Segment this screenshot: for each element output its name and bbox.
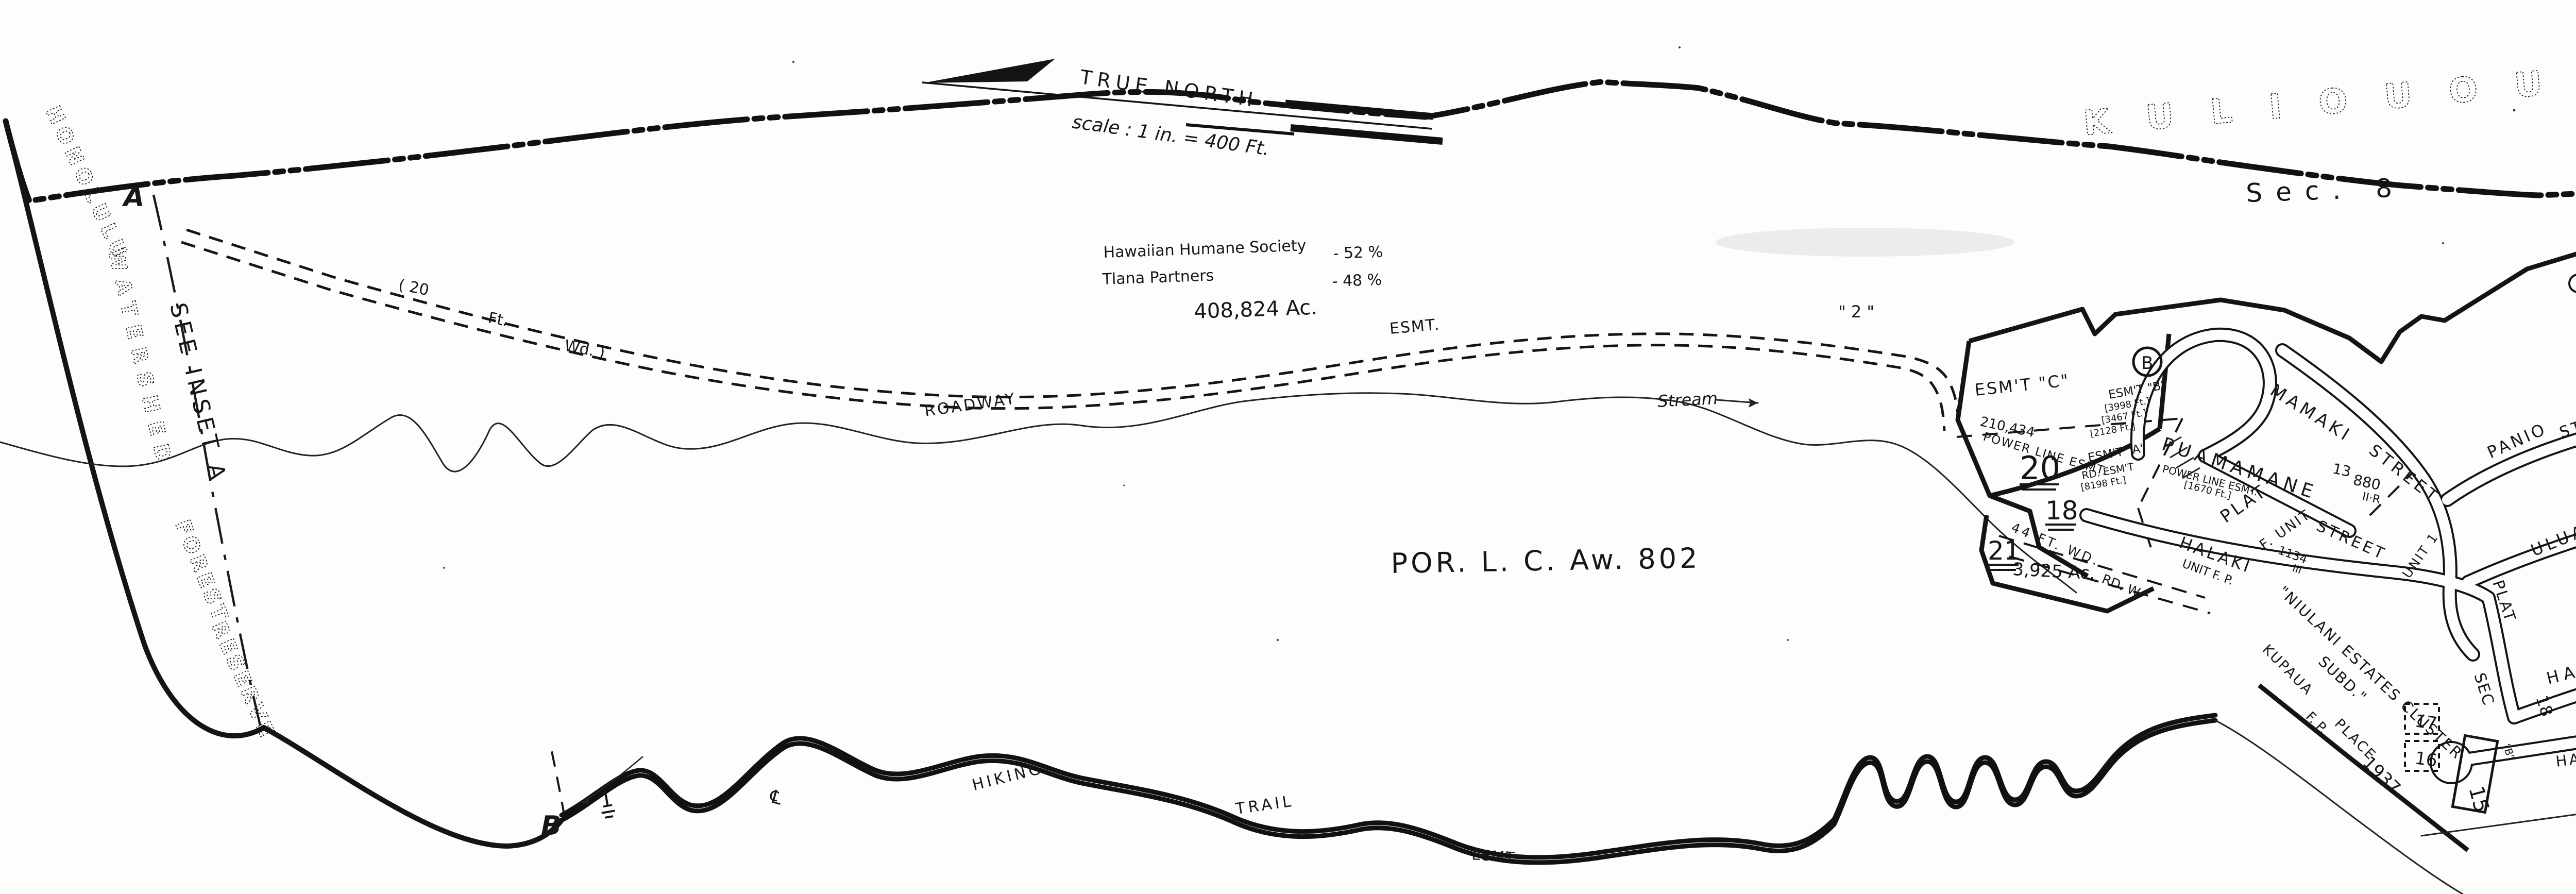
roadway-width-2-text: Ft. — [486, 309, 510, 330]
owner-1: Hawaiian Humane Society — [1103, 237, 1307, 262]
stream-line — [0, 393, 2076, 593]
point-a-label-text: A — [122, 182, 144, 213]
reserve-forest-text: FOREST — [171, 517, 233, 627]
fp-label-text: F. P. — [2302, 709, 2331, 737]
esmt-2-label: " 2 " — [1838, 302, 1874, 322]
trail-esmt-label: ESMT. — [1471, 846, 1520, 866]
rd-w-label: RD. W. — [2100, 571, 2145, 601]
trail-cl-symbol: ℄ — [767, 786, 785, 809]
fp-label: F. P. — [2302, 709, 2331, 737]
scale-label-text: scale : 1 in. = 400 Ft. — [1071, 111, 1271, 160]
point-a-label: A — [122, 182, 144, 213]
subdivision-streets — [2087, 335, 2576, 777]
stream-label-text: Stream — [1657, 389, 1718, 411]
scan-smudge — [1716, 228, 2014, 257]
total-area-label: 408,824 Ac. — [1194, 296, 1318, 324]
scale-bar-2 — [1291, 128, 1443, 141]
point-b-label-text: B — [541, 811, 562, 841]
lot-1-label: 1 — [597, 786, 616, 818]
sec-vert-label-text: SEC — [2470, 671, 2497, 709]
rd-w-label-text: RD. W. — [2100, 571, 2145, 601]
lot-20-label-text: 20 — [2020, 449, 2060, 487]
reserve-watershed: WATERSHED — [103, 246, 177, 473]
trail-hiking-label: HIKING — [970, 760, 1045, 795]
esmt-c-label-text: ESM'T "C" — [1974, 370, 2071, 400]
esmt-2-label-text: " 2 " — [1838, 302, 1874, 322]
trail-cl-symbol-text: ℄ — [767, 786, 785, 809]
district-name-text: KULIOUOU — [2082, 60, 2576, 143]
reserve-forest: FOREST — [171, 517, 233, 627]
area-3925-label-text: 3,925 Ac. — [2012, 559, 2096, 584]
panio-street-label-text: STREET — [2557, 402, 2576, 442]
num-880-text: 880 — [2352, 471, 2382, 494]
hiking-trail-edge — [562, 715, 2215, 857]
lot-16-label-text: 16 — [2414, 748, 2438, 771]
owner-2-text: Tlana Partners — [1101, 266, 1214, 289]
point-b-leader — [550, 744, 565, 817]
scale-label: scale : 1 in. = 400 Ft. — [1071, 111, 1271, 160]
owner-1-text: Hawaiian Humane Society — [1103, 237, 1307, 262]
cluster-top-boundary — [1969, 230, 2576, 362]
owner-1-share: - 52 % — [1333, 243, 1383, 263]
total-area-label-text: 408,824 Ac. — [1194, 296, 1318, 324]
niulani-label-text: "NIULANI ESTATES CLUSTER — [2275, 582, 2466, 763]
reserve-honolulu-text: HONOLULU — [41, 103, 133, 266]
trail-trail-label-text: TRAIL — [1234, 792, 1295, 818]
trail-trail-label: TRAIL — [1234, 792, 1295, 818]
district-sec-text: Sec. 8 — [2245, 173, 2405, 208]
district-sec: Sec. 8 — [2245, 173, 2405, 208]
niulani-label: "NIULANI ESTATES CLUSTER — [2275, 582, 2466, 763]
halemaumau-st-label: HALEMAUMAU — [2545, 630, 2576, 688]
point-b-label: B — [541, 811, 562, 841]
lot-18-label: 18 — [2045, 496, 2078, 530]
num-880: 880 — [2352, 471, 2382, 494]
esmt-b-circle-letter: B — [2141, 353, 2153, 374]
reserve-watershed-text: WATERSHED — [103, 246, 177, 473]
street-fills — [2087, 335, 2576, 777]
sec-vert-label: SEC — [2470, 671, 2497, 709]
reserve-honolulu: HONOLULU — [41, 103, 133, 266]
district-name: KULIOUOU — [2082, 60, 2576, 143]
lot-1-label-underline — [605, 816, 613, 818]
lot-18-label-text: 18 — [2045, 496, 2078, 526]
trail-hiking-label-text: HIKING — [970, 760, 1045, 795]
num-13-text: 13 — [2331, 460, 2353, 481]
roadway-esmt-label-text: ESMT. — [1389, 316, 1441, 338]
reserve-reserve: RESERVE — [207, 618, 280, 743]
area-3925-label: 3,925 Ac. — [2012, 559, 2096, 584]
parcel-title-label: POR. L. C. Aw. 802 — [1391, 542, 1701, 580]
esmt-c-label: ESM'T "C" — [1974, 370, 2071, 400]
stream-label: Stream — [1657, 389, 1718, 411]
lot-16-label: 16 — [2414, 748, 2438, 771]
roadway-esmt-label: ESMT. — [1389, 316, 1441, 338]
halemaumau-st-label-text: HALEMAUMAU — [2545, 630, 2576, 688]
owner-2-share-text: - 48 % — [1332, 271, 1382, 291]
roadway-width-3-text: Wd. ) — [563, 336, 606, 362]
owner-1-share-text: - 52 % — [1333, 243, 1383, 263]
lot-17-label: 17 — [2414, 711, 2438, 734]
trail-esmt-label-text: ESMT. — [1471, 846, 1520, 866]
west-south-boundary — [6, 121, 562, 846]
lot-20-label: 20 — [2020, 449, 2060, 490]
num-13: 13 — [2331, 460, 2353, 481]
esmt-b-circle-letter-text: B — [2141, 353, 2153, 374]
lot-17-label-text: 17 — [2414, 711, 2438, 734]
panio-street-label: STREET — [2557, 402, 2576, 442]
esmt-a-label-text: ESM'T "A" — [2087, 442, 2147, 465]
roadway-width-2: Ft. — [486, 309, 510, 330]
owner-2-share: - 48 % — [1332, 271, 1382, 291]
esmt-a-label: ESM'T "A" — [2087, 442, 2147, 465]
parcel-title-label-text: POR. L. C. Aw. 802 — [1391, 542, 1701, 580]
north-arrow-head — [923, 59, 1055, 83]
survey-map-canvas: TRUENORTHscale : 1 in. = 400 Ft.KULIOUOU… — [0, 0, 2576, 894]
roadway-width-3: Wd. ) — [563, 336, 606, 362]
reserve-reserve-text: RESERVE — [207, 618, 280, 743]
owner-2: Tlana Partners — [1101, 266, 1214, 289]
